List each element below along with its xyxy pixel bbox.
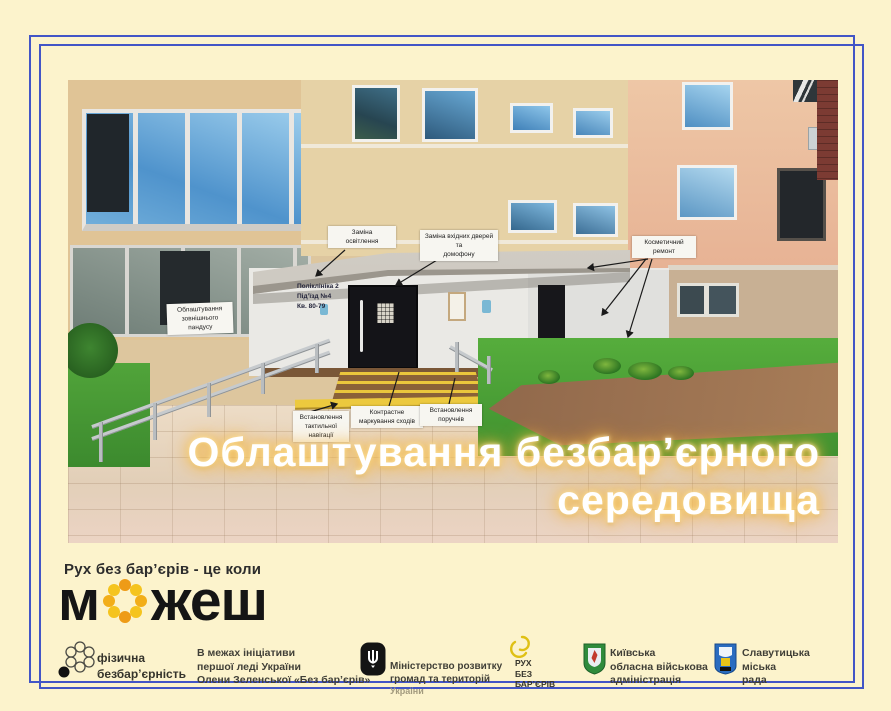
bush: [668, 366, 694, 380]
wall-plaque-icon: [482, 300, 491, 313]
railing-post: [207, 383, 211, 417]
label-ramp: Облаштування зовнішнього пандусу: [166, 302, 233, 336]
basement-window: [677, 283, 707, 317]
brand-letter-m: м: [58, 578, 99, 624]
physical-accessibility-icon: [56, 640, 98, 680]
window: [352, 85, 400, 142]
ministry-country: України: [390, 686, 502, 698]
window: [508, 200, 557, 233]
railing-post: [315, 344, 319, 373]
ministry-label: Міністерство розвитку громад та територі…: [390, 647, 502, 711]
notice-board: [448, 292, 466, 321]
open-window-pane: [87, 114, 129, 212]
label-lighting: Заміна освітлення: [328, 226, 396, 248]
dot-flower-icon: [102, 578, 148, 624]
door-window-grid: [377, 303, 394, 323]
entrance-wall-sign: Поліклініка 2 Під’їзд №4 Кв. 80-79: [297, 282, 357, 311]
label-handrails: Встановлення поручнів: [420, 404, 482, 426]
railing-post: [261, 363, 265, 394]
label-cosmetic: Косметичний ремонт: [632, 236, 696, 258]
window: [573, 203, 618, 237]
bush: [593, 358, 621, 374]
window: [510, 103, 553, 133]
window: [677, 165, 737, 220]
bush: [538, 370, 560, 384]
bush: [628, 362, 662, 380]
mozhesh-logo: м жеш: [58, 578, 267, 624]
label-stairs-marking: Контрастне маркування сходів: [351, 406, 423, 428]
initiative-label: В межах ініціативи першої леді України О…: [197, 647, 370, 688]
slavutych-council-label: Славутицька міська рада: [742, 647, 810, 688]
ministry-emblem-icon: [360, 642, 386, 676]
basement-window: [706, 283, 739, 317]
label-doors: Заміна вхідних дверей та домофону: [420, 230, 498, 261]
facade-seam: [301, 144, 628, 148]
dark-window: [793, 80, 817, 102]
poster-title: Облаштування безбар’єрного середовища: [68, 429, 820, 524]
window: [422, 88, 478, 142]
rukh-bez-baryeriv-label: РУХ БЕЗ БАР’ЄРІВ: [515, 658, 555, 690]
brick-edge: [817, 80, 838, 180]
railing-post: [487, 356, 491, 384]
railing-post: [455, 342, 459, 372]
physical-accessibility-label: фізична безбар’єрність: [97, 651, 186, 682]
window: [573, 108, 613, 138]
title-line-1: Облаштування безбар’єрного: [68, 429, 820, 477]
kyiv-oblast-coat-of-arms: [583, 643, 606, 675]
door-handle: [360, 300, 363, 352]
window: [682, 82, 733, 130]
entrance-door: [348, 285, 418, 369]
slavutych-coat-of-arms: [714, 643, 737, 675]
kyiv-administration-label: Київська обласна військова адміністрація: [610, 647, 708, 688]
brand-letters-zhesh: жеш: [151, 578, 267, 624]
ministry-name: Міністерство розвитку громад та територі…: [390, 661, 502, 685]
title-line-2: середовища: [68, 477, 820, 525]
